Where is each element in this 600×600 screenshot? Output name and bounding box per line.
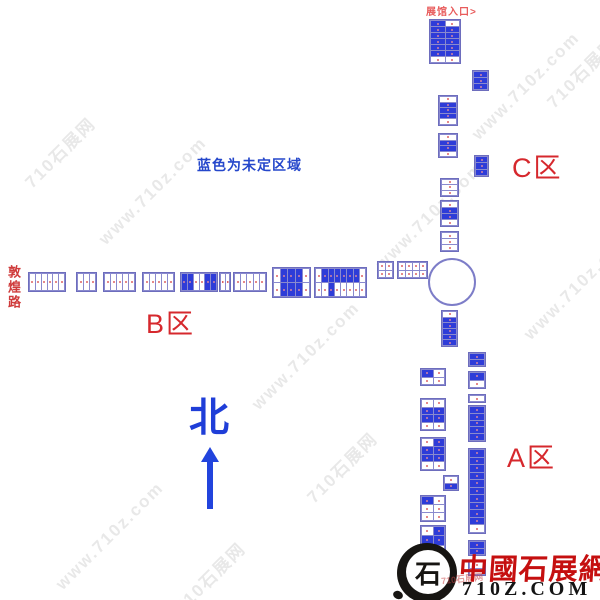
booth-cell [123, 274, 128, 290]
booth-cell-undetermined [440, 146, 456, 151]
booth-cell-undetermined [431, 39, 445, 44]
booth-cell [422, 400, 433, 407]
booth-cell [379, 263, 385, 270]
booth-cell [422, 423, 433, 430]
booth-cell [347, 283, 352, 296]
booth-cell [422, 439, 433, 446]
booth-cell-undetermined [470, 488, 484, 495]
booth-block [440, 200, 459, 227]
booth-cell [422, 505, 433, 512]
diagonal-watermark: www.710z.com [52, 478, 168, 594]
booth-cell [90, 274, 95, 290]
booth-block [142, 272, 175, 292]
booth-cell [247, 274, 252, 290]
booth-block [377, 261, 394, 279]
booth-block [440, 231, 459, 252]
booth-cell [434, 505, 445, 512]
booth-cell [443, 312, 456, 317]
booth-block [219, 272, 231, 292]
booth-cell [442, 180, 457, 184]
diagonal-watermark: www.710z.com [520, 228, 600, 344]
booth-cell-undetermined [446, 51, 460, 56]
booth-cell-undetermined [442, 214, 457, 219]
booth-cell-undetermined [470, 407, 484, 413]
booth-block [441, 310, 458, 347]
booth-cell-undetermined [296, 283, 302, 296]
diagonal-watermark: 710石展网 [300, 425, 382, 507]
booth-block [103, 272, 136, 292]
booth-cell-undetermined [422, 370, 433, 377]
booth-cell [226, 274, 230, 290]
diagonal-watermark: 710石展网 [18, 110, 100, 192]
booth-cell [144, 274, 149, 290]
booth-cell-undetermined [440, 114, 456, 119]
zone-c-label: C区 [512, 146, 563, 185]
booth-block [472, 70, 489, 91]
booth-cell [413, 263, 419, 270]
booth-block [76, 272, 97, 292]
booth-cell [406, 271, 412, 278]
booth-cell [105, 274, 110, 290]
booth-block [420, 437, 446, 471]
booth-cell [111, 274, 116, 290]
booth-cell [59, 274, 64, 290]
booth-cell-undetermined [470, 373, 484, 380]
booth-cell-undetermined [434, 527, 445, 535]
road-label: 敦煌路 [4, 265, 23, 310]
booth-cell-undetermined [422, 408, 433, 415]
booth-cell-undetermined [205, 274, 210, 290]
booth-cell-undetermined [470, 427, 484, 433]
booth-cell-undetermined [431, 27, 445, 32]
booth-cell-undetermined [474, 78, 487, 83]
booth-cell [379, 271, 385, 278]
booth-cell-undetermined [341, 269, 346, 282]
booth-cell [420, 263, 426, 270]
booth-cell [235, 274, 240, 290]
zone-a-label: A区 [507, 436, 556, 475]
booth-block [474, 155, 489, 177]
booth-cell [440, 119, 456, 124]
booth-cell-undetermined [211, 274, 216, 290]
booth-cell [442, 202, 457, 207]
booth-cell-undetermined [288, 283, 294, 296]
booth-cell-undetermined [422, 447, 433, 454]
booth-cell-undetermined [470, 450, 484, 457]
booth-cell [254, 274, 259, 290]
site-logo-icon: 石 [397, 543, 457, 600]
booth-cell-undetermined [431, 45, 445, 50]
legend-note: 蓝色为未定区域 [197, 155, 302, 175]
booth-cell [442, 245, 457, 250]
booth-cell [422, 378, 433, 385]
booth-cell-undetermined [281, 269, 287, 282]
booth-cell [420, 271, 426, 278]
booth-cell-undetermined [322, 269, 327, 282]
exhibition-floorplan: 710石展网www.710z.comwww.710z.com710石展网www.… [0, 0, 600, 600]
booth-cell-undetermined [442, 208, 457, 213]
booth-block [468, 394, 486, 403]
booth-cell [446, 21, 460, 26]
booth-cell [470, 525, 484, 532]
booth-cell [117, 274, 122, 290]
booth-cell-undetermined [440, 108, 456, 113]
booth-cell [442, 233, 457, 238]
booth-cell-undetermined [474, 84, 487, 89]
booth-cell-undetermined [443, 318, 456, 323]
booth-cell [431, 57, 445, 62]
booth-cell-undetermined [335, 269, 340, 282]
logo-stone-glyph: 石 [415, 554, 441, 591]
booth-cell [303, 283, 309, 296]
booth-cell-undetermined [443, 329, 456, 334]
booth-cell [442, 191, 457, 195]
booth-block [438, 133, 458, 158]
booth-cell-undetermined [347, 269, 352, 282]
booth-block [420, 368, 446, 386]
booth-cell-undetermined [446, 39, 460, 44]
booth-block [420, 398, 446, 431]
booth-cell [434, 378, 445, 385]
booth-cell-undetermined [182, 274, 187, 290]
booth-cell [194, 274, 199, 290]
booth-cell [440, 97, 456, 102]
booth-cell-undetermined [329, 269, 334, 282]
booth-cell-undetermined [431, 33, 445, 38]
booth-cell-undetermined [434, 415, 445, 422]
booth-cell [42, 274, 47, 290]
booth-cell [354, 283, 359, 296]
booth-cell [470, 396, 484, 401]
booth-cell [221, 274, 225, 290]
booth-cell [30, 274, 35, 290]
booth-cell [386, 263, 392, 270]
booth-cell [434, 513, 445, 520]
arrow-shaft [207, 459, 213, 509]
booth-block [28, 272, 66, 292]
booth-cell [445, 477, 457, 483]
booth-cell-undetermined [446, 27, 460, 32]
diagonal-watermark: www.710z.com [248, 298, 364, 414]
north-label: 北 [189, 385, 229, 443]
booth-block [272, 267, 311, 298]
booth-block [314, 267, 367, 298]
booth-cell [422, 513, 433, 520]
booth-cell [303, 269, 309, 282]
booth-cell-undetermined [440, 103, 456, 108]
booth-cell-undetermined [470, 510, 484, 517]
booth-cell-undetermined [470, 473, 484, 480]
booth-cell-undetermined [288, 269, 294, 282]
booth-cell [84, 274, 89, 290]
booth-block [468, 405, 486, 442]
entrance-label: 展馆入口> [426, 3, 477, 18]
booth-cell-undetermined [422, 497, 433, 504]
diagonal-watermark: www.710z.com [372, 158, 488, 274]
booth-cell-undetermined [470, 354, 484, 359]
booth-cell [434, 462, 445, 469]
booth-cell-undetermined [470, 360, 484, 365]
booth-cell [399, 271, 405, 278]
booth-cell [274, 283, 280, 296]
booth-cell-undetermined [188, 274, 193, 290]
booth-cell [274, 269, 280, 282]
booth-cell-undetermined [431, 51, 445, 56]
booth-cell-undetermined [474, 72, 487, 77]
booth-cell [129, 274, 134, 290]
booth-cell-undetermined [470, 480, 484, 487]
booth-cell-undetermined [434, 439, 445, 446]
booth-cell-undetermined [470, 503, 484, 510]
booth-cell-undetermined [443, 323, 456, 328]
booth-cell [335, 283, 340, 296]
booth-cell-undetermined [431, 21, 445, 26]
booth-cell [48, 274, 53, 290]
booth-cell-undetermined [476, 170, 487, 175]
booth-block [233, 272, 267, 292]
booth-cell-undetermined [470, 421, 484, 427]
diagonal-watermark: 710石展网 [168, 535, 250, 600]
booth-block [468, 371, 486, 389]
booth-cell [360, 283, 365, 296]
booth-cell-undetermined [445, 484, 457, 490]
roundabout-circle [428, 258, 476, 306]
booth-cell [322, 283, 327, 296]
booth-cell [53, 274, 58, 290]
booth-cell-undetermined [443, 340, 456, 345]
booth-cell [241, 274, 246, 290]
booth-cell [150, 274, 155, 290]
booth-cell [36, 274, 41, 290]
booth-cell-undetermined [470, 414, 484, 420]
booth-cell-undetermined [434, 447, 445, 454]
booth-cell [78, 274, 83, 290]
diagonal-watermark: www.710z.com [95, 133, 211, 249]
booth-block [429, 19, 461, 64]
booth-cell [260, 274, 265, 290]
booth-cell [440, 135, 456, 140]
booth-cell-undetermined [422, 415, 433, 422]
booth-cell-undetermined [281, 283, 287, 296]
booth-cell-undetermined [446, 45, 460, 50]
site-domain: 710Z.COM [462, 578, 591, 600]
booth-cell [156, 274, 161, 290]
booth-cell [341, 283, 346, 296]
booth-cell [422, 527, 433, 535]
booth-cell [434, 400, 445, 407]
booth-cell [200, 274, 205, 290]
booth-cell [406, 263, 412, 270]
booth-cell [399, 263, 405, 270]
booth-cell-undetermined [476, 163, 487, 168]
booth-block [468, 448, 486, 534]
booth-cell [162, 274, 167, 290]
booth-cell-undetermined [470, 434, 484, 440]
booth-cell [470, 381, 484, 388]
booth-cell-undetermined [470, 518, 484, 525]
booth-block [440, 178, 459, 197]
booth-block [438, 95, 458, 126]
booth-block [443, 475, 459, 491]
booth-block [180, 272, 218, 292]
booth-cell [442, 220, 457, 225]
booth-cell-undetermined [470, 458, 484, 465]
booth-cell [446, 57, 460, 62]
booth-block [420, 495, 446, 522]
booth-cell-undetermined [329, 283, 334, 296]
booth-block [397, 261, 428, 279]
booth-cell [442, 185, 457, 189]
zone-b-label: B区 [146, 302, 195, 341]
booth-cell [434, 370, 445, 377]
booth-cell [316, 269, 321, 282]
booth-cell [442, 239, 457, 244]
booth-cell-undetermined [470, 465, 484, 472]
booth-cell-undetermined [443, 335, 456, 340]
booth-cell-undetermined [434, 455, 445, 462]
booth-cell-undetermined [434, 408, 445, 415]
booth-cell [168, 274, 173, 290]
booth-cell [386, 271, 392, 278]
booth-cell [316, 283, 321, 296]
booth-cell [413, 271, 419, 278]
booth-cell [422, 462, 433, 469]
booth-cell-undetermined [440, 141, 456, 146]
booth-block [468, 352, 486, 367]
booth-cell-undetermined [354, 269, 359, 282]
booth-cell-undetermined [446, 33, 460, 38]
booth-cell-undetermined [422, 455, 433, 462]
booth-cell-undetermined [476, 157, 487, 162]
booth-cell-undetermined [296, 269, 302, 282]
booth-cell [434, 497, 445, 504]
booth-cell-undetermined [470, 495, 484, 502]
booth-cell [434, 423, 445, 430]
north-arrow-icon [199, 447, 221, 509]
logo-inner-circle: 石 [406, 550, 450, 594]
booth-cell [360, 269, 365, 282]
booth-cell [440, 152, 456, 157]
